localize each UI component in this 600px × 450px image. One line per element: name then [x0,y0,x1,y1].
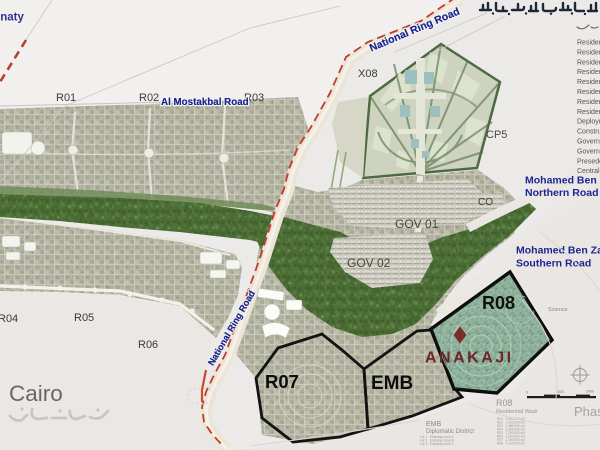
svg-text:ANAKAJI: ANAKAJI [425,350,514,367]
svg-text:Northern Road: Northern Road [525,187,599,199]
svg-text:Presedential: Presedential [577,158,600,165]
svg-text:Lot 3 Embassy zone C: Lot 3 Embassy zone C [420,442,455,446]
svg-text:Construction: Construction [577,129,600,136]
svg-text:X08: X08 [358,68,378,80]
svg-text:Cairo: Cairo [9,381,63,406]
svg-text:Residential: Residential [577,40,600,47]
svg-text:Science: Science [548,307,568,313]
svg-text:Government: Government [577,148,600,155]
svg-text:R08: R08 [496,398,513,408]
svg-text:Residential: Residential [577,49,600,56]
svg-text:R05: R05 [74,312,94,324]
svg-text:CP5: CP5 [486,129,507,141]
svg-text:GOV 01: GOV 01 [395,217,439,231]
svg-text:2000: 2000 [586,390,594,394]
svg-text:R08: R08 [482,293,515,313]
svg-text:Mohamed Ben Zayed: Mohamed Ben Zayed [525,175,600,187]
svg-text:EMB: EMB [371,373,413,394]
svg-text:Residential: Residential [577,69,600,76]
svg-text:R08 1,100,000 m2: R08 1,100,000 m2 [497,442,525,446]
svg-text:EMB: EMB [426,421,442,428]
svg-text:GOV 02: GOV 02 [347,256,391,270]
svg-text:0: 0 [526,391,528,395]
svg-text:R07: R07 [265,371,299,392]
svg-text:R02: R02 [139,92,159,104]
svg-text:Residential: Residential [577,59,600,66]
svg-text:Al Mostakbal Road: Al Mostakbal Road [161,97,249,108]
svg-text:Government: Government [577,139,600,146]
svg-text:R04: R04 [0,313,18,325]
svg-text:Deployment: Deployment [577,119,600,126]
svg-text:CO: CO [478,197,493,208]
svg-text:Residential: Residential [577,109,600,116]
svg-text:Residential Wadi: Residential Wadi [496,409,537,415]
svg-text:Madinaty: Madinaty [0,12,24,24]
svg-text:Residential: Residential [577,99,600,106]
svg-text:Central: Central [577,168,600,175]
svg-text:Residential: Residential [577,89,600,96]
svg-text:1000: 1000 [556,390,564,394]
svg-text:R06: R06 [138,339,158,351]
svg-text:Phase: Phase [574,404,600,419]
svg-text:Residential: Residential [577,79,600,86]
